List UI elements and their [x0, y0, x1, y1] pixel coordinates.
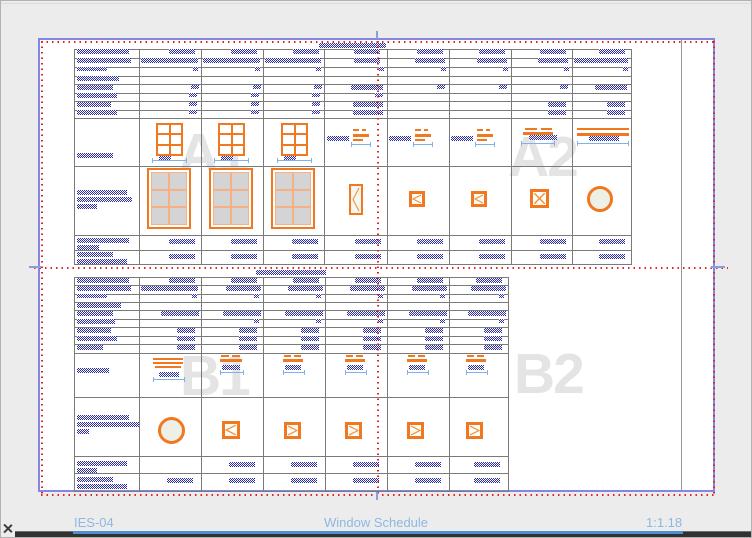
crop-mark-left [29, 266, 41, 268]
margin-dots-bottom [41, 494, 717, 496]
tile-boundary-horizontal [34, 267, 728, 269]
pane-splitter-icon[interactable] [2, 523, 13, 534]
sheet-scale-label: 1:1.18 [646, 515, 682, 530]
crop-mark-right [711, 266, 725, 268]
horizontal-scrollbar-thumb[interactable] [73, 531, 683, 534]
page-margin-layer [1, 1, 752, 538]
sheet-id-label: IES-04 [74, 515, 114, 530]
crop-mark-top [376, 31, 378, 39]
cad-application-window: A1 A2 B1 B2 IES-04 Window Schedule 1:1.1… [0, 0, 752, 538]
crop-mark-bottom [376, 492, 378, 500]
sheet-title-label: Window Schedule [324, 515, 428, 530]
